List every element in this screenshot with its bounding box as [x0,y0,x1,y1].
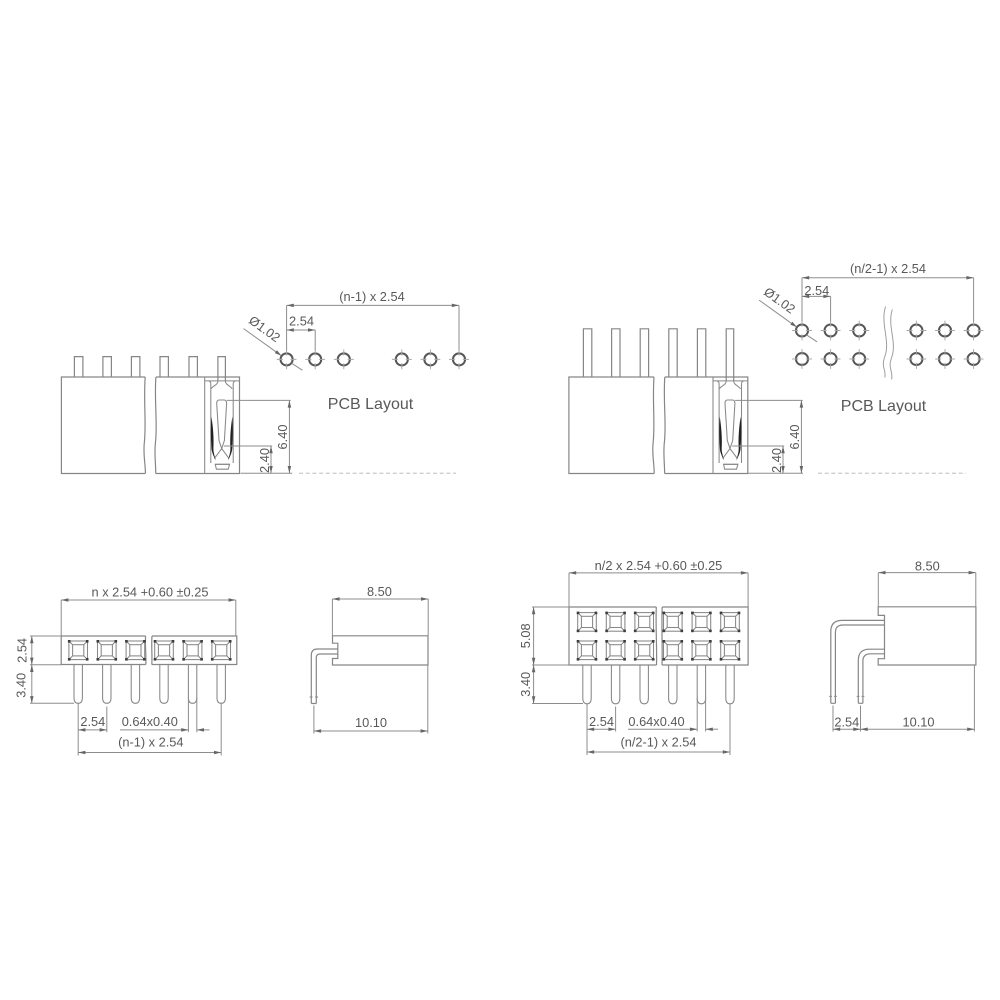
svg-text:3.40: 3.40 [13,673,28,698]
svg-text:8.50: 8.50 [915,558,940,573]
svg-text:6.40: 6.40 [275,425,290,450]
svg-text:2.54: 2.54 [289,313,314,328]
svg-text:2.54: 2.54 [589,714,614,729]
svg-text:8.50: 8.50 [367,584,392,599]
svg-text:2.54: 2.54 [804,283,829,298]
svg-text:(n-1) x 2.54: (n-1) x 2.54 [339,289,404,304]
svg-text:(n/2-1) x 2.54: (n/2-1) x 2.54 [620,734,696,749]
svg-text:n/2 x 2.54 +0.60 ±0.25: n/2 x 2.54 +0.60 ±0.25 [595,558,723,573]
svg-text:2.54: 2.54 [15,638,30,663]
svg-text:2.54: 2.54 [80,714,105,729]
svg-text:6.40: 6.40 [787,425,802,450]
svg-text:2.54: 2.54 [834,714,859,729]
svg-text:10.10: 10.10 [355,715,387,730]
svg-text:3.40: 3.40 [518,672,533,697]
svg-text:0.64x0.40: 0.64x0.40 [628,714,684,729]
svg-text:0.64x0.40: 0.64x0.40 [122,714,178,729]
svg-text:n x 2.54 +0.60 ±0.25: n x 2.54 +0.60 ±0.25 [92,585,209,600]
svg-text:2.40: 2.40 [769,448,784,473]
svg-text:5.08: 5.08 [518,623,533,648]
svg-text:PCB Layout: PCB Layout [328,396,414,413]
svg-text:(n-1) x 2.54: (n-1) x 2.54 [118,735,183,750]
svg-text:2.40: 2.40 [257,448,272,473]
svg-text:PCB Layout: PCB Layout [841,398,927,415]
svg-text:10.10: 10.10 [902,714,934,729]
svg-text:(n/2-1) x 2.54: (n/2-1) x 2.54 [850,261,926,276]
